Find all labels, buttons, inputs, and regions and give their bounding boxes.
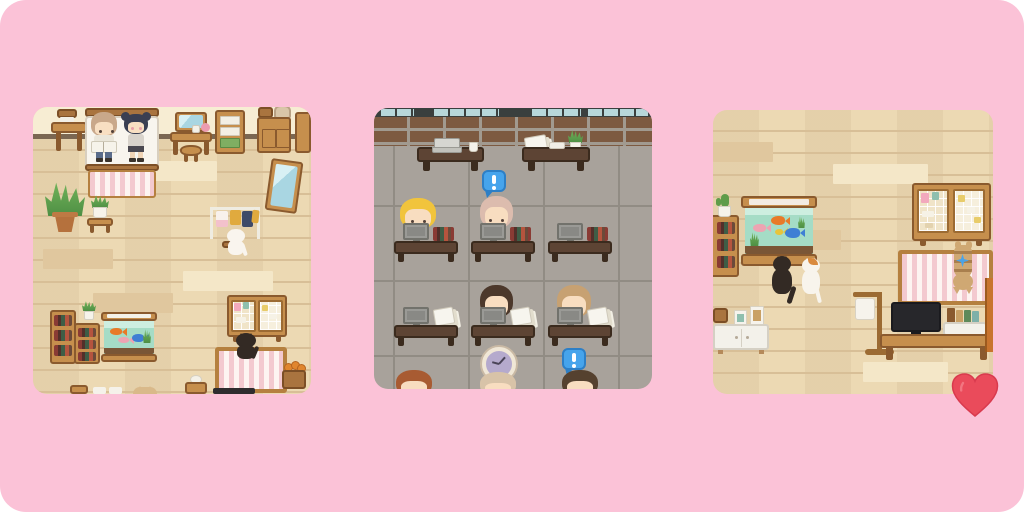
small-stand bbox=[185, 375, 209, 394]
desk-monitor-books bbox=[548, 236, 612, 262]
desk-leg bbox=[602, 254, 608, 262]
desk-monitor-papers bbox=[548, 320, 612, 346]
desk-top bbox=[471, 241, 535, 254]
desk-top bbox=[548, 325, 612, 338]
vanity-leg bbox=[173, 142, 178, 155]
fish-pink bbox=[753, 224, 766, 232]
monitor-screen bbox=[407, 227, 425, 236]
sticky-note-pink bbox=[234, 303, 241, 311]
paper-stack bbox=[433, 306, 456, 326]
stool-leg bbox=[90, 226, 94, 233]
stool-leg bbox=[184, 155, 188, 162]
door-divider bbox=[741, 329, 742, 347]
shelf-books bbox=[54, 345, 72, 356]
desk-monitor-books bbox=[471, 236, 535, 262]
desk-leg bbox=[525, 338, 531, 346]
basket bbox=[282, 370, 306, 389]
pink-striped-rug bbox=[898, 250, 993, 305]
plant-stool bbox=[87, 218, 113, 226]
rack-leg bbox=[210, 207, 213, 239]
black-cat-watching bbox=[769, 256, 797, 304]
white-floor-item bbox=[93, 387, 106, 394]
handle bbox=[735, 336, 738, 339]
table-leg bbox=[56, 133, 61, 151]
white-pot bbox=[718, 206, 731, 217]
dresser-drawer bbox=[220, 116, 240, 125]
white-floor-item bbox=[109, 387, 122, 394]
sticky-note-pink bbox=[921, 193, 929, 203]
sticky-note-white bbox=[922, 211, 934, 217]
sideboard-foot bbox=[718, 350, 723, 354]
monitor-screen bbox=[561, 311, 579, 320]
sideboard-leg bbox=[471, 162, 478, 171]
sideboard-leg bbox=[528, 162, 535, 171]
shelf-books bbox=[54, 330, 72, 341]
fish-blue bbox=[785, 228, 800, 238]
cat-tail bbox=[240, 243, 248, 257]
plant-on-stool bbox=[87, 195, 113, 233]
aquarium-water bbox=[745, 208, 813, 254]
stand-top bbox=[185, 382, 207, 394]
boy-shoe bbox=[96, 158, 103, 162]
character-beige-partial bbox=[480, 372, 516, 389]
cactus-arm bbox=[716, 198, 721, 206]
picture-frame bbox=[750, 306, 764, 325]
white-cat bbox=[225, 229, 247, 257]
bookshelf-column bbox=[50, 310, 76, 364]
window bbox=[432, 109, 499, 116]
plant-leaves bbox=[45, 182, 85, 216]
shelf-books bbox=[717, 256, 735, 268]
table-leg bbox=[77, 133, 82, 151]
desk-leg bbox=[475, 338, 481, 346]
eyes bbox=[489, 219, 492, 222]
garment-white-pink bbox=[216, 211, 228, 227]
cat-body bbox=[772, 268, 792, 294]
memo-leg bbox=[920, 241, 926, 246]
book-spine bbox=[103, 142, 104, 152]
aquarium-gravel bbox=[745, 246, 813, 254]
collage-canvas bbox=[0, 0, 1024, 512]
desk-top bbox=[394, 325, 458, 338]
desk-books bbox=[510, 227, 531, 241]
monitor bbox=[480, 307, 506, 324]
sticky-note-white bbox=[269, 314, 277, 319]
sticky-note-white bbox=[967, 207, 975, 213]
sideboard-foot bbox=[759, 350, 764, 354]
cabinet bbox=[257, 107, 293, 153]
floor-plank bbox=[863, 362, 948, 382]
desk-monitor-papers bbox=[471, 320, 535, 346]
bubble-body bbox=[482, 170, 506, 192]
desk-leg bbox=[602, 338, 608, 346]
fish-blue bbox=[132, 334, 144, 342]
tall-shelf-edge bbox=[985, 278, 993, 352]
face bbox=[401, 381, 427, 389]
black-cat bbox=[233, 333, 259, 361]
vanity bbox=[170, 112, 214, 162]
desk-leg bbox=[448, 338, 454, 346]
cabinet-door bbox=[276, 129, 290, 148]
cat-tail bbox=[814, 286, 822, 303]
bookshelf-column bbox=[74, 323, 100, 364]
cabinet-partial bbox=[295, 112, 311, 153]
sideboard-body bbox=[713, 324, 769, 350]
desk-top bbox=[471, 325, 535, 338]
floor-plank bbox=[43, 249, 113, 269]
sticky-note-yellow bbox=[262, 305, 268, 311]
boy-shoe bbox=[105, 158, 112, 162]
screenshot-office bbox=[374, 108, 652, 389]
monitor bbox=[403, 307, 429, 324]
low-table bbox=[70, 385, 88, 394]
desk-books bbox=[587, 227, 608, 241]
white-tray bbox=[549, 142, 565, 149]
bookshelf bbox=[713, 215, 739, 277]
cup bbox=[192, 125, 200, 133]
vanity-desktop bbox=[170, 132, 212, 142]
fish-pink bbox=[118, 337, 129, 343]
fish-orange bbox=[110, 328, 122, 335]
desk-books bbox=[433, 227, 454, 241]
white-cat-watching bbox=[799, 258, 825, 304]
monitor bbox=[557, 223, 583, 240]
girl-shoe bbox=[129, 158, 136, 162]
window bbox=[530, 109, 581, 116]
cabinet-door bbox=[262, 129, 276, 148]
window bbox=[586, 109, 648, 116]
handle bbox=[746, 336, 749, 339]
cabinet-body bbox=[257, 117, 291, 153]
monitor bbox=[480, 223, 506, 240]
shelf-books bbox=[78, 340, 96, 349]
tv-stand bbox=[880, 332, 993, 362]
cat-peeking bbox=[133, 383, 157, 394]
floor-plank bbox=[183, 271, 273, 291]
sticky-note-yellow bbox=[958, 195, 965, 202]
shelf-plant-pot bbox=[84, 311, 94, 320]
coffee-mug bbox=[469, 142, 478, 152]
desk-top bbox=[394, 241, 458, 254]
shelf-books bbox=[54, 315, 72, 326]
garment-yellow bbox=[230, 210, 241, 225]
side-table bbox=[51, 108, 89, 154]
aquarium-lid-strip bbox=[107, 314, 151, 318]
heart-sticker bbox=[951, 371, 999, 419]
monitor-screen bbox=[407, 311, 425, 320]
shelf-books bbox=[717, 222, 735, 234]
sticky-note-yellow bbox=[974, 217, 981, 223]
orange-basket bbox=[280, 360, 308, 392]
large-potted-plant bbox=[45, 182, 85, 234]
floor-plank bbox=[713, 142, 773, 162]
exclamation-bar bbox=[572, 353, 576, 362]
character-boy-reading bbox=[91, 112, 117, 162]
aquarium-lid-strip bbox=[749, 199, 809, 205]
floor-plank bbox=[833, 164, 928, 184]
desk-leg bbox=[552, 254, 558, 262]
pot-rim bbox=[52, 212, 78, 217]
dark-device bbox=[213, 388, 255, 394]
white-sideboard bbox=[713, 306, 771, 356]
bed bbox=[85, 108, 159, 198]
sticky-note-white bbox=[236, 317, 246, 323]
girl-shoe bbox=[137, 158, 144, 162]
stool-leg bbox=[106, 226, 110, 233]
aquarium-stand bbox=[101, 354, 157, 362]
bubble-body bbox=[562, 348, 586, 370]
garment-yellow bbox=[251, 210, 259, 224]
sticky-note-tan bbox=[925, 223, 933, 228]
girl-blush bbox=[131, 127, 134, 130]
sideboard-top bbox=[522, 147, 590, 162]
fish-orange bbox=[771, 216, 785, 225]
desk-monitor-books bbox=[394, 236, 458, 262]
laptop-base bbox=[432, 147, 462, 153]
white-pot bbox=[93, 207, 107, 218]
memo-leg bbox=[276, 337, 281, 342]
exclamation-bar bbox=[492, 175, 496, 184]
screenshot-livingroom bbox=[713, 110, 993, 394]
desk-leg bbox=[525, 254, 531, 262]
pink-cosmetic bbox=[201, 123, 210, 132]
dresser-green-bin bbox=[220, 138, 240, 148]
fish-gold bbox=[775, 229, 783, 235]
stool-leg bbox=[194, 155, 198, 162]
dresser bbox=[215, 110, 245, 154]
box-on-sideboard bbox=[713, 308, 728, 323]
monitor bbox=[557, 307, 583, 324]
tabby-cat-lounging bbox=[948, 241, 978, 295]
stand-leg bbox=[886, 348, 893, 360]
tv-stand-top bbox=[880, 334, 993, 348]
shelf-books bbox=[78, 328, 96, 337]
sideboard-papers bbox=[522, 136, 594, 172]
cat-head bbox=[953, 273, 973, 290]
desk-leg bbox=[475, 254, 481, 262]
sticky-note-teal bbox=[243, 302, 249, 309]
aquarium-water bbox=[104, 321, 154, 354]
desk-top bbox=[548, 241, 612, 254]
cat-head-top bbox=[133, 387, 157, 394]
monitor-screen bbox=[484, 227, 502, 236]
sticky-note-teal bbox=[932, 192, 939, 200]
vanity-leg bbox=[204, 142, 209, 155]
plant-pot bbox=[54, 217, 76, 232]
lamp-shade bbox=[855, 298, 875, 320]
floor-mirror bbox=[265, 158, 304, 214]
bed-blanket bbox=[88, 170, 156, 198]
face bbox=[485, 383, 511, 389]
desk-leg bbox=[552, 338, 558, 346]
monitor-screen bbox=[561, 227, 579, 236]
dresser-drawer bbox=[220, 127, 240, 136]
desk-leg bbox=[398, 338, 404, 346]
frame-tan-picture bbox=[753, 310, 761, 321]
bookshelf bbox=[50, 310, 102, 366]
face bbox=[567, 381, 593, 389]
side-table-top bbox=[51, 122, 87, 133]
plant-leaves bbox=[82, 301, 96, 311]
desk-leg bbox=[448, 254, 454, 262]
shelf-books bbox=[717, 239, 735, 251]
monitor-screen bbox=[484, 311, 502, 320]
paper-stack bbox=[510, 306, 533, 326]
screenshot-bedroom bbox=[33, 107, 311, 394]
brick-wall bbox=[374, 117, 652, 146]
shelf-books bbox=[78, 352, 96, 361]
boy-eyes bbox=[99, 130, 102, 133]
sideboard-leg bbox=[577, 162, 584, 171]
open-book bbox=[91, 141, 117, 153]
frame-green-card bbox=[737, 314, 744, 322]
aquarium-plant bbox=[798, 216, 805, 228]
memo-boards bbox=[912, 183, 993, 247]
monitor bbox=[403, 223, 429, 240]
aquarium-plant bbox=[750, 232, 759, 246]
sideboard-laptop bbox=[417, 138, 484, 172]
character-girl-buns bbox=[123, 112, 149, 162]
heart-icon bbox=[951, 371, 999, 419]
boy-face bbox=[95, 122, 113, 135]
paper-stack bbox=[587, 306, 610, 326]
aquarium bbox=[101, 312, 157, 362]
character-auburn-partial bbox=[396, 370, 432, 389]
desk-leg bbox=[398, 254, 404, 262]
desk-monitor-papers bbox=[394, 320, 458, 346]
character-brown-partial bbox=[562, 370, 598, 389]
shelf-plant-leaves bbox=[82, 301, 96, 311]
sideboard-leg bbox=[423, 162, 430, 171]
cactus-pot bbox=[715, 194, 735, 218]
window bbox=[379, 109, 414, 116]
tv-screen bbox=[891, 302, 941, 332]
floor-plank bbox=[93, 293, 173, 313]
